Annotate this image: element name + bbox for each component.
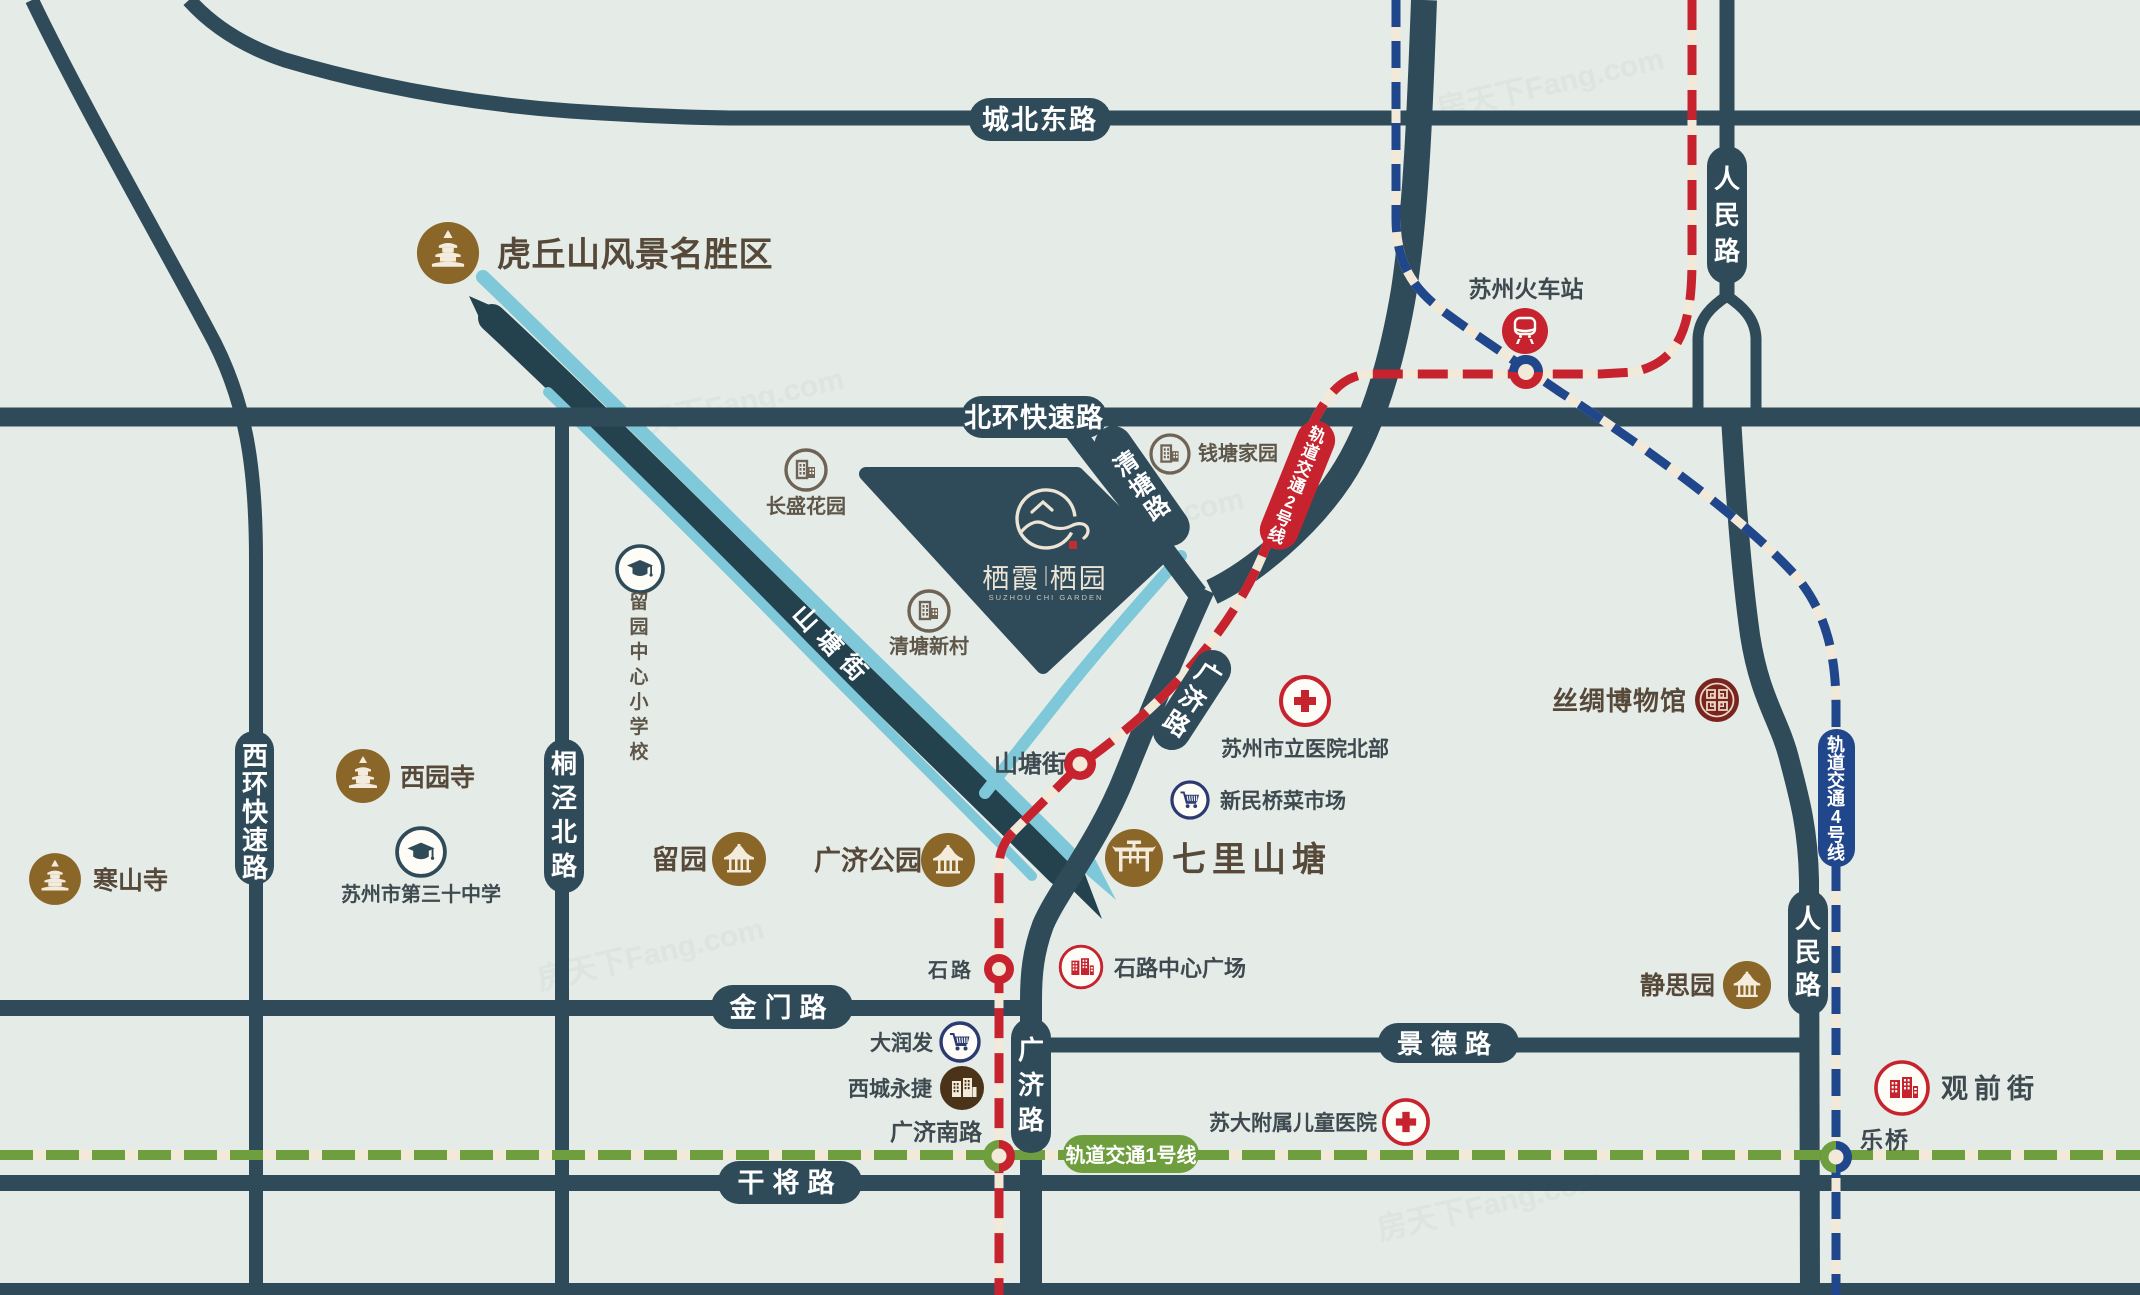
svg-text:泾: 泾 [551,783,577,813]
svg-text:新民桥菜市场: 新民桥菜市场 [1220,789,1346,813]
svg-text:长盛花园: 长盛花园 [766,494,846,518]
svg-text:中: 中 [629,640,648,663]
svg-text:路: 路 [1795,970,1822,1000]
svg-text:心: 心 [629,666,648,688]
svg-text:桐: 桐 [551,749,577,779]
svg-text:北环快速路: 北环快速路 [964,402,1104,433]
svg-text:道: 道 [1827,752,1845,773]
svg-text:速: 速 [242,825,268,855]
svg-text:路: 路 [1714,236,1741,266]
svg-text:寒山寺: 寒山寺 [93,866,168,895]
svg-text:干将路: 干将路 [738,1167,843,1198]
svg-text:苏州市立医院北部: 苏州市立医院北部 [1221,737,1389,761]
svg-text:山塘街: 山塘街 [994,750,1066,778]
svg-text:轨道交通1号线: 轨道交通1号线 [1065,1143,1196,1167]
svg-text:济: 济 [1018,1070,1045,1100]
svg-text:留园: 留园 [652,845,708,875]
svg-text:民: 民 [1795,937,1821,967]
svg-text:民: 民 [1714,200,1740,230]
svg-text:静思园: 静思园 [1640,971,1715,1000]
svg-text:西: 西 [242,741,268,771]
svg-text:苏州火车站: 苏州火车站 [1469,276,1584,302]
svg-text:校: 校 [629,740,649,763]
svg-text:苏州市第三十中学: 苏州市第三十中学 [341,882,501,906]
svg-text:线: 线 [1827,842,1845,863]
svg-text:北: 北 [551,817,577,847]
svg-text:人: 人 [1795,904,1821,934]
svg-text:园: 园 [629,616,648,638]
svg-text:西城永捷: 西城永捷 [848,1077,932,1101]
svg-text:SUZHOU CHI GARDEN: SUZHOU CHI GARDEN [989,593,1104,602]
svg-text:金门路: 金门路 [729,992,835,1023]
svg-text:轨: 轨 [1827,734,1845,755]
svg-text:丝绸博物馆: 丝绸博物馆 [1552,686,1687,716]
svg-text:路: 路 [242,853,269,883]
svg-text:清塘新村: 清塘新村 [889,634,969,658]
svg-text:苏大附属儿童医院: 苏大附属儿童医院 [1209,1111,1377,1135]
svg-text:4: 4 [1831,807,1841,827]
svg-text:留: 留 [629,591,648,613]
svg-text:七里山塘: 七里山塘 [1172,841,1332,879]
svg-text:西园寺: 西园寺 [400,763,475,792]
svg-text:号: 号 [1827,825,1845,845]
svg-text:广济南路: 广济南路 [890,1119,983,1145]
svg-text:虎丘山风景名胜区: 虎丘山风景名胜区 [497,236,773,274]
svg-text:景德路: 景德路 [1397,1029,1499,1059]
svg-text:广济公园: 广济公园 [814,846,922,876]
svg-text:栖霞 栖园: 栖霞 栖园 [982,564,1108,594]
svg-text:广: 广 [1018,1035,1044,1065]
svg-text:大润发: 大润发 [870,1031,934,1055]
svg-text:观前街: 观前街 [1941,1073,2040,1104]
svg-text:小: 小 [629,691,648,713]
svg-text:路: 路 [1018,1105,1045,1135]
svg-text:城北东路: 城北东路 [982,104,1098,135]
svg-text:乐桥: 乐桥 [1860,1127,1910,1153]
svg-text:石路中心广场: 石路中心广场 [1113,956,1246,981]
svg-text:通: 通 [1827,789,1845,809]
svg-text:交: 交 [1827,770,1845,791]
svg-text:环: 环 [242,769,268,799]
svg-text:钱塘家园: 钱塘家园 [1198,441,1278,465]
svg-text:石路: 石路 [927,958,974,982]
svg-text:快: 快 [242,797,269,827]
svg-text:人: 人 [1714,164,1740,194]
svg-text:学: 学 [629,715,648,738]
svg-text:路: 路 [551,851,578,881]
